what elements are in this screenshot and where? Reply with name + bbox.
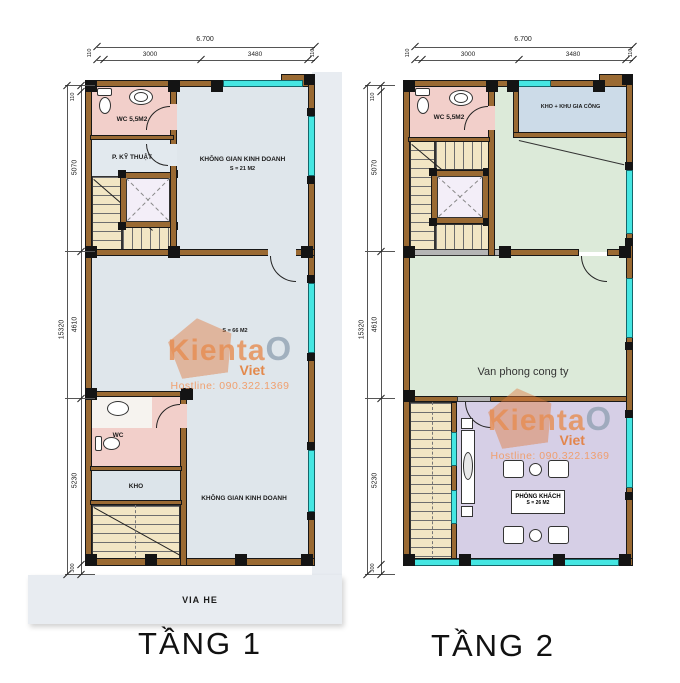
window (451, 432, 457, 466)
column (429, 218, 437, 226)
dim-label: 110 (628, 43, 634, 63)
column (304, 74, 315, 85)
armchair (548, 526, 569, 544)
dimension-line (97, 47, 315, 48)
sink-icon (107, 401, 129, 416)
room-label-wc-top: WC 5,5M2 (408, 114, 490, 123)
door-opening (180, 404, 187, 428)
wall-strip-top (85, 391, 187, 397)
dimension-line (367, 85, 368, 574)
wall-bottom (85, 558, 315, 566)
dim-label: 4610 (372, 305, 379, 345)
floor2-plan: WC 5,5M2 KHO + KHU GIA CÔNG Van phong co… (403, 80, 633, 566)
column (507, 80, 519, 92)
column (486, 80, 498, 92)
stair-center-line (432, 402, 433, 559)
wall-left (85, 80, 92, 566)
stairs-upper (92, 176, 122, 252)
floor2-title: TẦNG 2 (408, 628, 578, 664)
side-table (461, 506, 473, 517)
window (626, 278, 633, 338)
window (515, 80, 551, 87)
column (625, 410, 633, 418)
column (593, 80, 605, 92)
column (619, 246, 631, 258)
wall-storage-left (513, 85, 519, 138)
wall-mid-1 (505, 249, 579, 256)
dim-label: 3480 (533, 51, 613, 58)
column (499, 246, 511, 258)
window (308, 450, 315, 512)
dim-label: 3480 (215, 51, 295, 58)
column (403, 246, 415, 258)
wall-storage-bottom (513, 132, 628, 138)
dim-label: 5070 (72, 148, 79, 188)
room-label-office: Van phong cong ty (443, 366, 603, 378)
column (307, 275, 315, 283)
window (308, 283, 315, 353)
wall-mid-2 (403, 396, 633, 402)
wall-storage-stairs (90, 500, 182, 505)
dim-label: 4610 (72, 305, 79, 345)
column (625, 162, 633, 170)
dim-label: 5230 (72, 461, 79, 501)
room-label-business-top-area: S = 21 M2 (180, 166, 305, 172)
column (211, 80, 223, 92)
wall-left (403, 80, 410, 566)
elevator-shaft-icon (126, 178, 170, 222)
stairs-upper-run (435, 224, 493, 250)
dimension-line (415, 47, 633, 48)
column (429, 168, 437, 176)
wall-wc-storage (90, 466, 182, 471)
dimension-line (97, 60, 315, 61)
dim-label: 5070 (372, 148, 379, 188)
toilet-icon (97, 88, 112, 96)
column (625, 238, 633, 246)
dim-label: 3000 (110, 51, 190, 58)
dim-label: 6.700 (468, 36, 578, 43)
room-label-storage: KHO (90, 483, 182, 492)
stairs-upper-run (435, 140, 493, 170)
column (235, 554, 247, 566)
sidewalk-backdrop-right (312, 72, 342, 575)
column (403, 554, 415, 566)
room-label-technical: P. KỸ THUẬT (90, 154, 174, 163)
column (181, 388, 193, 400)
dim-label: 300 (370, 553, 376, 583)
column (625, 492, 633, 500)
sink-icon (134, 92, 148, 102)
floor1-title: TẦNG 1 (115, 626, 285, 662)
round-table (529, 529, 542, 542)
dim-label: 15320 (59, 310, 66, 350)
column (403, 80, 415, 92)
stair-center-line (135, 505, 136, 559)
dim-label: 15320 (359, 310, 366, 350)
column (307, 176, 315, 184)
column (85, 246, 97, 258)
dim-label: 110 (87, 43, 93, 63)
room-label-business-top: KHÔNG GIAN KINH DOANH (180, 156, 305, 165)
sink-icon (454, 93, 468, 103)
dimension-line (381, 85, 382, 574)
wall-wc (90, 135, 174, 140)
side-table (461, 418, 473, 429)
room-label-wc-top: WC 5,5M2 (90, 116, 174, 125)
dim-label: 110 (70, 82, 76, 112)
round-table (529, 463, 542, 476)
column (118, 222, 126, 230)
window (223, 80, 303, 87)
room-label-living-area: S = 26 M2 (512, 500, 564, 506)
dim-label: 110 (405, 43, 411, 63)
dim-label: 3000 (428, 51, 508, 58)
armchair (503, 526, 524, 544)
column (85, 554, 97, 566)
column (307, 442, 315, 450)
decor-vase-icon (463, 452, 473, 480)
elevator-shaft-icon (437, 176, 483, 218)
column (459, 554, 471, 566)
column (625, 342, 633, 350)
column (307, 108, 315, 116)
column (85, 80, 97, 92)
sidewalk-label: VIA HE (130, 594, 270, 606)
floor1-plan: WC 5,5M2 P. KỸ THUẬT KHÔNG GIAN KINH DOA… (85, 80, 315, 566)
dim-label: 300 (70, 553, 76, 583)
column (301, 554, 313, 566)
toilet-icon (99, 97, 111, 114)
column (168, 246, 180, 258)
living-label-box: PHÒNG KHÁCH S = 26 M2 (511, 490, 565, 514)
dim-label: 110 (310, 43, 316, 63)
column (403, 390, 415, 402)
room-label-wc-bottom: WC (93, 432, 143, 441)
door-opening (268, 249, 296, 256)
dim-label: 5230 (372, 461, 379, 501)
column (307, 512, 315, 520)
dimension-line (415, 60, 633, 61)
column (145, 554, 157, 566)
window (626, 416, 633, 488)
column (553, 554, 565, 566)
armchair (548, 460, 569, 478)
dimension-line (67, 85, 68, 574)
armchair (503, 460, 524, 478)
column (168, 80, 180, 92)
room-label-storage-top: KHO + KHU GIA CÔNG (513, 104, 628, 110)
window (308, 116, 315, 176)
dim-label: 6.700 (150, 36, 260, 43)
room-label-open-area: S = 66 M2 (185, 328, 285, 334)
wall-stairs-living (451, 402, 457, 559)
column (622, 74, 633, 85)
dimension-line (81, 85, 82, 574)
floorplan-canvas: VIA HE (0, 0, 680, 683)
window (626, 170, 633, 234)
toilet-icon (415, 88, 430, 96)
column (307, 353, 315, 361)
column (118, 170, 126, 178)
window (451, 490, 457, 524)
dim-label: 110 (370, 82, 376, 112)
column (619, 554, 631, 566)
window (413, 559, 619, 566)
column (301, 246, 313, 258)
toilet-icon (417, 97, 429, 114)
wall-wc (408, 137, 490, 142)
room-label-business-bottom: KHÔNG GIAN KINH DOANH (180, 495, 308, 504)
